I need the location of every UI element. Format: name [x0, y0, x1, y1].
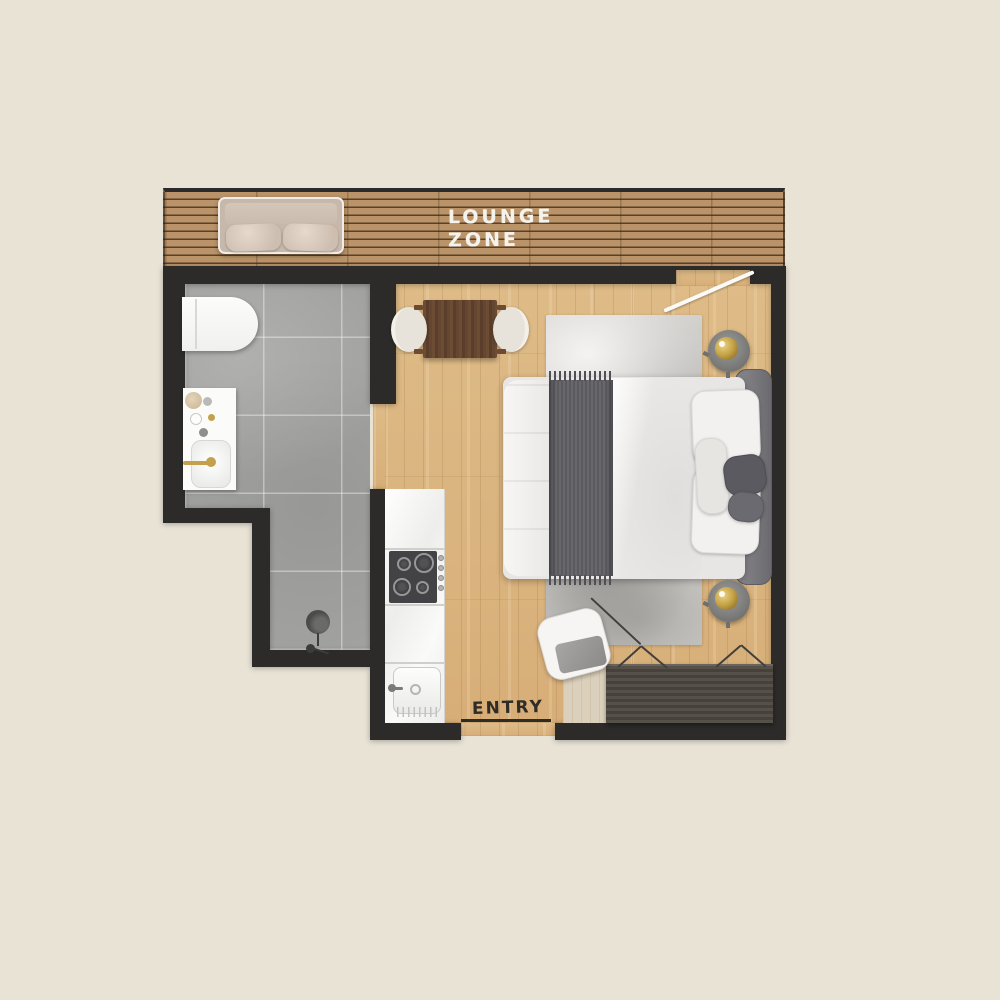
- vanity-decor-gold-bottle: [208, 414, 215, 421]
- entry-doorway-floor: [461, 723, 555, 736]
- chair-armrest: [414, 305, 423, 310]
- lounge-zone-label-line1: LOUNGE: [448, 205, 554, 229]
- cooktop-knob: [438, 555, 444, 561]
- burner-small: [397, 557, 411, 571]
- burner-large: [393, 578, 411, 596]
- bed-throw-blanket: [549, 380, 613, 576]
- chair-armrest: [414, 349, 423, 354]
- lounge-door-lintel: [676, 266, 750, 270]
- sink-drainboard-grill: [397, 707, 439, 717]
- wall-bottom-left: [370, 723, 461, 740]
- entry-label: ENTRY: [472, 697, 544, 719]
- vanity-decor-soap: [199, 428, 208, 437]
- bed-duvet-roll: [504, 380, 551, 576]
- burner-large: [414, 553, 434, 573]
- vanity-decor-dish: [190, 413, 202, 425]
- cooktop: [389, 551, 437, 603]
- counter-divider: [385, 604, 444, 606]
- lounge-zone-label-line2: ZONE: [448, 228, 554, 252]
- cooktop-knob: [438, 565, 444, 571]
- entry-underline: [461, 719, 551, 722]
- lamp-highlight: [719, 591, 725, 597]
- wall-partition-lower: [370, 489, 385, 740]
- sofa-seat-cushion: [283, 223, 339, 252]
- wardrobe-dresser: [606, 664, 773, 723]
- sofa-seat-cushion: [226, 223, 282, 252]
- toilet: [182, 297, 258, 351]
- chair-armrest: [497, 349, 506, 354]
- cooktop-knob: [438, 585, 444, 591]
- vanity-decor-flowers: [185, 392, 202, 409]
- faucet-handle: [206, 457, 216, 467]
- outdoor-sofa: [218, 197, 344, 254]
- shower-arm: [317, 633, 319, 646]
- floor-plan-canvas: { "title": "Studio apartment floor plan"…: [0, 0, 1000, 1000]
- kitchen-faucet-base: [388, 684, 396, 692]
- shower-head: [306, 610, 330, 634]
- burner-small: [416, 581, 429, 594]
- wall-bathroom-bottom: [252, 650, 385, 667]
- throw-fringe-bottom: [549, 575, 613, 585]
- toilet-seam-line: [195, 299, 197, 349]
- dining-table: [423, 300, 497, 358]
- dining-chair-left: [391, 307, 427, 352]
- lounge-zone-label: LOUNGE ZONE: [448, 205, 554, 252]
- wall-shower-left: [252, 508, 270, 667]
- dining-chair-right: [493, 307, 529, 352]
- bed-duvet: [610, 378, 702, 578]
- counter-divider: [385, 662, 444, 664]
- table-lamp-gold: [715, 587, 738, 610]
- sofa-back-cushion: [225, 203, 337, 224]
- wall-right: [771, 266, 786, 740]
- wall-bottom-right: [555, 723, 786, 740]
- cooktop-knob: [438, 575, 444, 581]
- vanity-decor-jar: [203, 397, 212, 406]
- pouf-cushion: [554, 635, 607, 674]
- chair-armrest: [497, 305, 506, 310]
- sink-drain: [410, 684, 421, 695]
- throw-fringe-top: [549, 371, 613, 381]
- side-table-leg: [726, 622, 730, 628]
- side-table-leg: [726, 372, 730, 378]
- table-lamp-gold: [715, 337, 738, 360]
- counter-divider: [385, 548, 444, 550]
- lamp-highlight: [719, 341, 725, 347]
- wall-top-left: [163, 266, 676, 284]
- bathroom-doorway-floor: [373, 404, 385, 489]
